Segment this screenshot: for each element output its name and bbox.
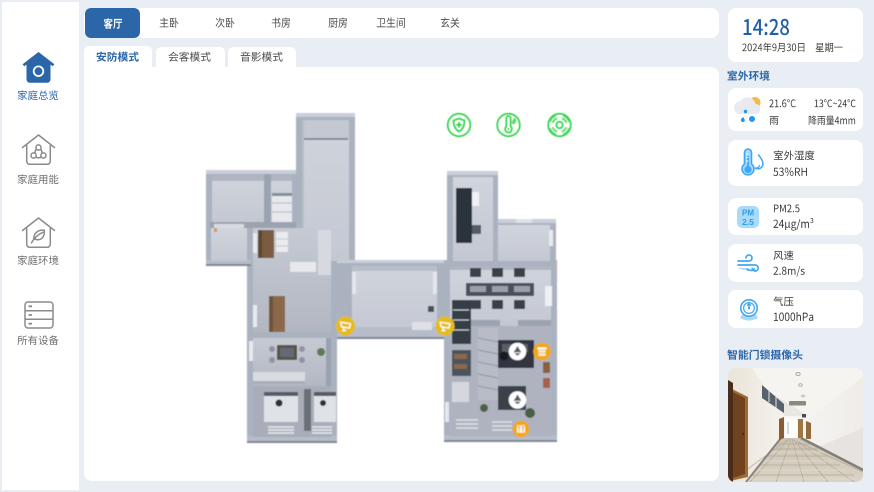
svg-text:2.5: 2.5 xyxy=(742,217,754,227)
